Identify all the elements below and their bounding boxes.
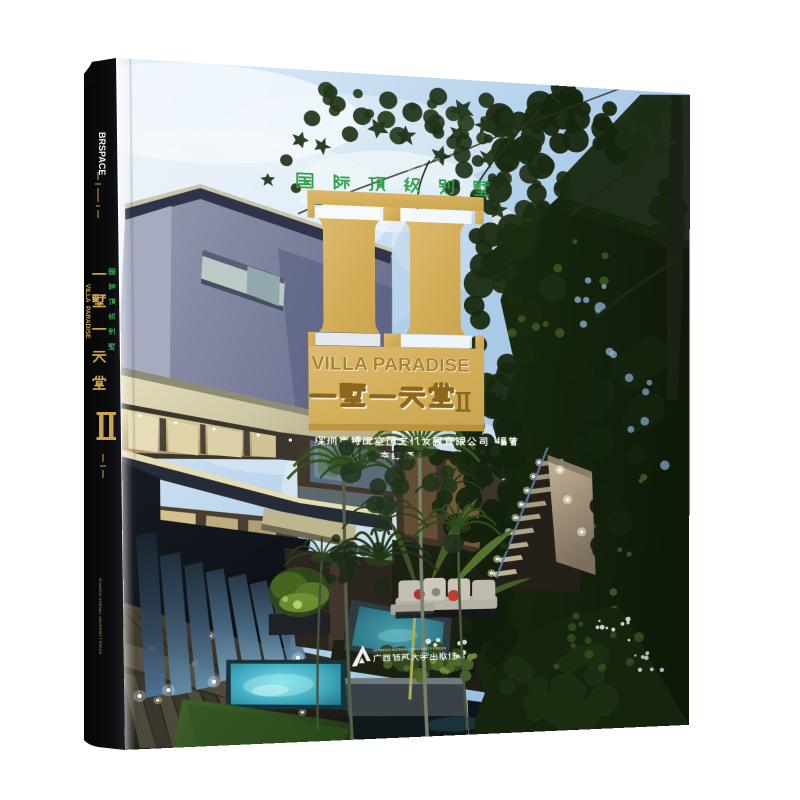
svg-text:GUANGXI NORMAL UNIVERSITY PRES: GUANGXI NORMAL UNIVERSITY PRESS <box>98 578 103 655</box>
svg-text:VILLA PARADISE: VILLA PARADISE <box>84 284 91 339</box>
svg-text:BRSPACE: BRSPACE <box>97 132 107 175</box>
